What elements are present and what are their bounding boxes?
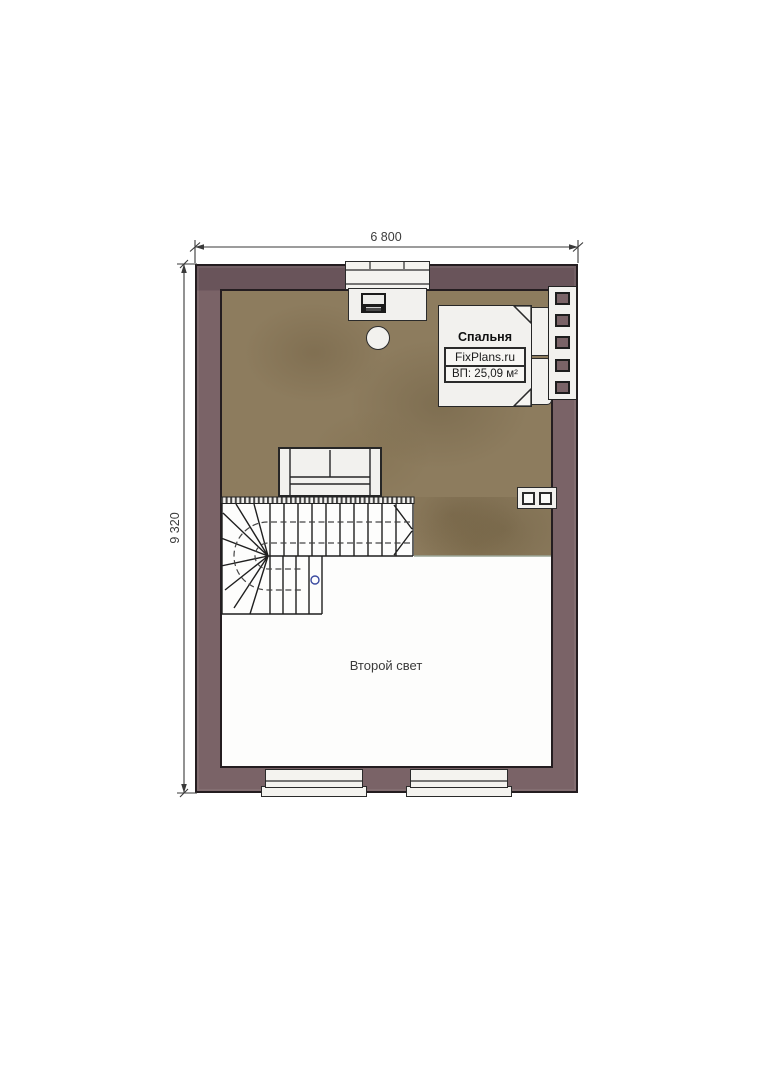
stool [366, 326, 390, 350]
wardrobe-cell [555, 292, 570, 305]
wardrobe-cell [555, 359, 570, 372]
wall-socket-panel [517, 487, 557, 509]
dimension-height-label: 9 320 [168, 498, 184, 558]
wardrobe-cell [555, 336, 570, 349]
room-name-label: Спальня [439, 330, 531, 344]
socket-cell [522, 492, 535, 505]
window-top [345, 261, 430, 290]
monitor-screen [363, 295, 384, 304]
sofa [278, 447, 382, 497]
wardrobe-cell [555, 314, 570, 327]
void-area-label: Второй свет [316, 658, 456, 673]
window-bottom-left [265, 769, 363, 788]
room-area-label: ВП: 25,09 м² [444, 367, 526, 383]
built-in-wardrobe [548, 286, 577, 400]
window-bottom-right [410, 769, 508, 788]
monitor-stand [366, 307, 381, 311]
wardrobe-cell [555, 381, 570, 394]
brand-label: FixPlans.ru [444, 347, 526, 367]
bed: Спальня FixPlans.ru ВП: 25,09 м² [438, 305, 532, 407]
desk [348, 288, 427, 321]
dimension-width-label: 6 800 [352, 230, 420, 244]
computer-monitor [361, 293, 386, 313]
floor-plan-page: Спальня FixPlans.ru ВП: 25,09 м² 6 800 9… [0, 0, 763, 1080]
socket-cell [539, 492, 552, 505]
